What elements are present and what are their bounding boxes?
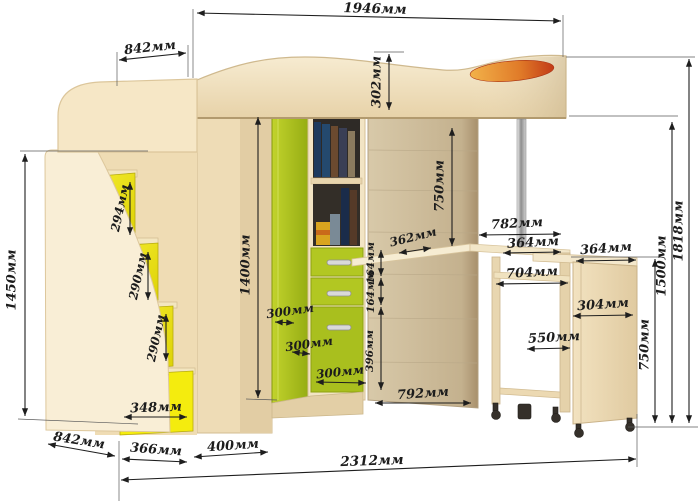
dim-desk-782-label: 782мм — [491, 215, 544, 233]
dim-total-top-width-label: 1946мм — [343, 0, 407, 18]
back-panel — [368, 118, 478, 408]
dim-desk-550-label: 550мм — [528, 329, 581, 347]
dim-drawer3-label: 396мм — [364, 330, 376, 372]
dim-stairs-height-label: 1450мм — [5, 250, 20, 311]
dim-underbed-clearance-label: 750мм — [433, 160, 448, 212]
underbed-side-panel — [197, 116, 272, 433]
dim-total-width-label: 2312мм — [340, 452, 404, 470]
desk-casters — [492, 403, 561, 423]
desk-bottom-shelf — [500, 388, 560, 398]
stairs-unit — [45, 79, 197, 435]
dim-desk-height-label: 750мм — [638, 319, 653, 371]
dim-bed-base-height-label: 1500мм — [655, 236, 670, 297]
dim-wardrobe-height-label: 1400мм — [239, 235, 254, 296]
dim-total-height-label: 1818мм — [672, 201, 687, 262]
furniture-dimension-diagram: 1946мм 842мм 302мм 1450мм 294мм 290мм 29… — [0, 0, 700, 502]
dim-bed-panel-height-label: 302мм — [370, 56, 385, 108]
dim-desk-364a-label: 364мм — [507, 234, 560, 252]
desk-left-support — [492, 257, 500, 404]
stair-top-cabinet — [58, 79, 197, 152]
support-pole — [517, 119, 526, 253]
dim-step-drawer-label: 348мм — [130, 400, 182, 417]
pedestal-body — [573, 262, 637, 424]
dim-desk-704-label: 704мм — [506, 264, 559, 282]
dim-drawer2-label: 164мм — [365, 271, 377, 313]
